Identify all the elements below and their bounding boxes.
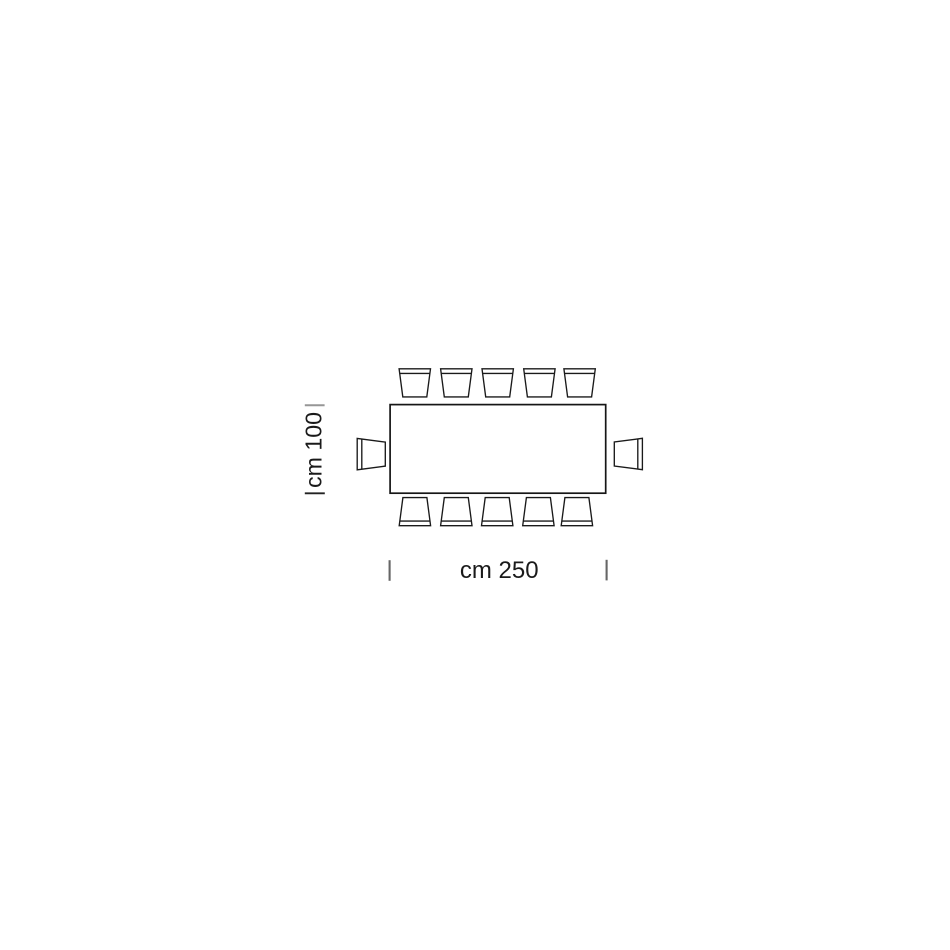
svg-text:cm 100: cm 100 <box>301 412 327 488</box>
svg-text:cm 250: cm 250 <box>460 557 539 584</box>
